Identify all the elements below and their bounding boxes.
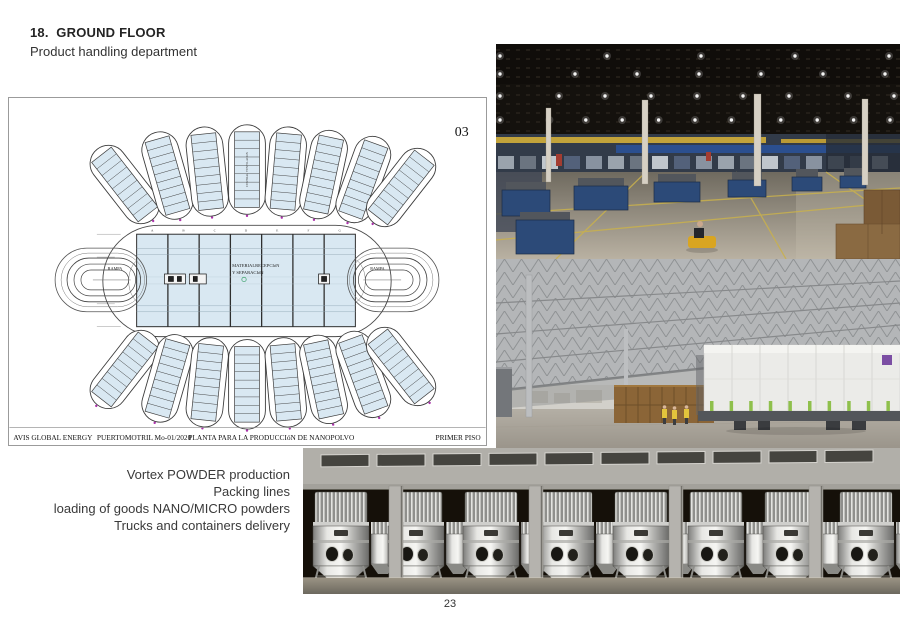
titleblock-company: AVIS GLOBAL ENERGY — [13, 433, 93, 442]
floor-plan: 03 ABCDEFG — [8, 97, 487, 446]
pod-vertical-label: CENTRAL VENTILACIóN — [245, 151, 249, 187]
grid-letters: ABCDEFG — [151, 229, 341, 233]
grid-letter: G — [339, 229, 342, 233]
ramp-right — [347, 248, 438, 312]
floor-strip — [303, 578, 900, 594]
storage-pod — [229, 340, 266, 432]
ramp-left-label: RAMPA — [108, 266, 122, 271]
caption-line: Vortex POWDER production — [40, 466, 290, 483]
canopy-column — [526, 275, 532, 417]
grid-letter: D — [245, 229, 248, 233]
central-hall-label-2: Y SEPARACIóN — [232, 270, 264, 275]
grid-letter: C — [214, 229, 217, 233]
cargo-label — [882, 355, 892, 365]
titleblock-sheet-name: PRIMER PISO — [436, 433, 481, 442]
side-wall — [496, 369, 512, 417]
caption-line: Trucks and containers delivery — [40, 517, 290, 534]
photo-caption: Vortex POWDER production Packing lines l… — [40, 466, 290, 534]
page-subtitle: Product handling department — [30, 44, 197, 59]
photo-canopy-loading — [496, 259, 900, 452]
page-title: 18. GROUND FLOOR — [30, 25, 197, 40]
caption-line: Packing lines — [40, 483, 290, 500]
storage-pod: CENTRAL VENTILACIóN — [229, 125, 266, 217]
central-hall-label-1: MATERIALRECEPCIóN — [232, 263, 280, 268]
grid-letter: F — [308, 229, 310, 233]
ramp-left — [55, 248, 146, 312]
grid-letter: E — [276, 229, 278, 233]
titleblock-location: PUERTOMOTRIL Mo-01/2020 — [97, 433, 192, 442]
sheet-number: 03 — [455, 125, 469, 140]
titleblock-drawing-title: PLANTA PARA LA PRODUCCIóN DE NANOPOLVO — [188, 433, 354, 442]
slide-ground-floor: 18. GROUND FLOOR Product handling depart… — [0, 0, 900, 636]
photo-steel-tanks — [303, 448, 900, 594]
slide-header: 18. GROUND FLOOR Product handling depart… — [30, 25, 197, 59]
page-number: 23 — [428, 598, 472, 610]
grid-letter: B — [182, 229, 185, 233]
floor-plan-drawing: 03 ABCDEFG — [9, 98, 486, 445]
ramp-right-label: RAMPA — [370, 266, 384, 271]
photo-factory-interior — [496, 44, 900, 259]
grid-letter: A — [151, 229, 154, 233]
caption-line: loading of goods NANO/MICRO powders — [40, 500, 290, 517]
trailer-bed — [698, 411, 900, 421]
